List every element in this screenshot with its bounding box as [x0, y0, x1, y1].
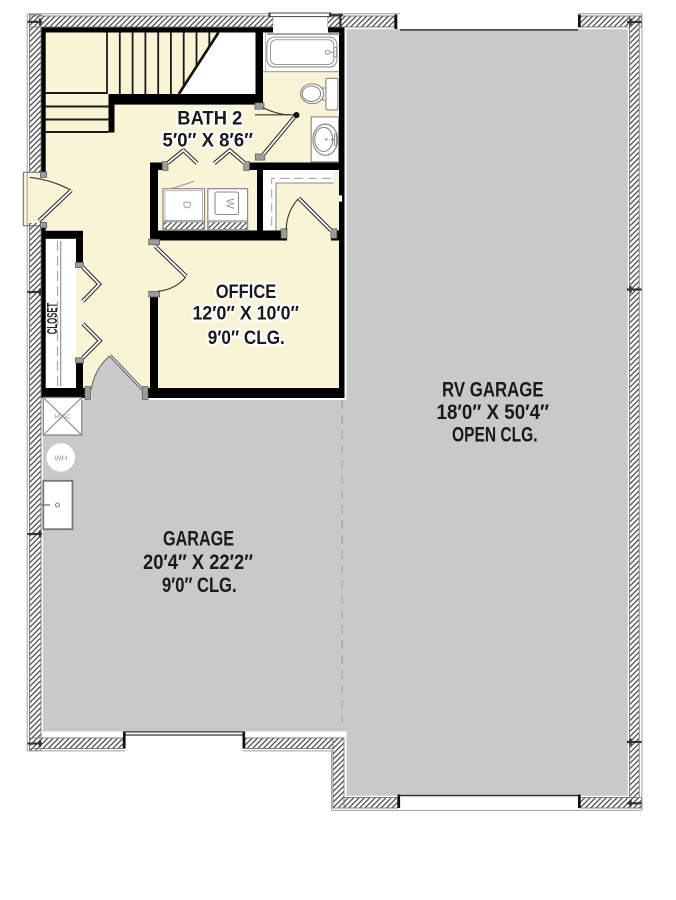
svg-text:12′0″ X 10′0″: 12′0″ X 10′0″	[193, 304, 300, 325]
svg-text:GARAGE: GARAGE	[163, 527, 234, 551]
svg-text:18′0″ X 50′4″: 18′0″ X 50′4″	[437, 400, 550, 424]
svg-text:RV GARAGE: RV GARAGE	[442, 378, 544, 402]
svg-text:D: D	[181, 201, 193, 209]
svg-text:HVAC: HVAC	[55, 414, 71, 421]
svg-text:W: W	[224, 198, 236, 209]
svg-text:CLOSET: CLOSET	[44, 303, 61, 335]
svg-text:WH: WH	[54, 454, 67, 463]
svg-text:20′4″ X 22′2″: 20′4″ X 22′2″	[143, 550, 253, 574]
svg-text:9′0″ CLG.: 9′0″ CLG.	[162, 573, 237, 597]
svg-text:5′0″ X 8′6″: 5′0″ X 8′6″	[163, 131, 254, 152]
svg-text:9′0″ CLG.: 9′0″ CLG.	[208, 328, 285, 349]
svg-text:BATH 2: BATH 2	[177, 109, 242, 130]
svg-text:OFFICE: OFFICE	[216, 282, 277, 303]
svg-text:OPEN CLG.: OPEN CLG.	[452, 423, 538, 447]
